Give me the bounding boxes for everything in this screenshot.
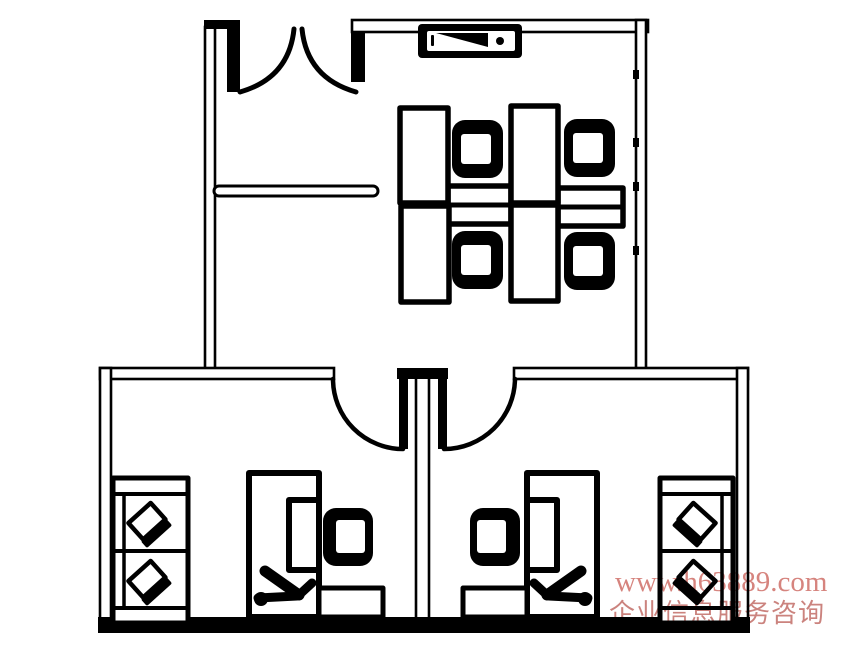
- door-leaf-left: [399, 374, 408, 449]
- cabinet-shelf-icon: [113, 478, 188, 623]
- door-swing-left: [333, 379, 403, 449]
- office-chair-icon: [564, 119, 615, 177]
- left-office: [113, 473, 383, 623]
- lower-section-walls: [98, 368, 750, 633]
- double-door-icon: [240, 29, 356, 92]
- office-chair-icon: [470, 508, 520, 566]
- upper-left-wall: [205, 27, 215, 375]
- bottom-wall: [98, 617, 750, 633]
- office-chair-icon: [564, 232, 615, 290]
- wall-nub: [633, 138, 639, 147]
- workstation-desk-icon: [400, 108, 448, 203]
- tv-screen-icon: [418, 24, 522, 58]
- lower-top-wall-right: [514, 368, 748, 379]
- drawer-pedestal-icon: [319, 588, 383, 617]
- monitor-icon: [289, 500, 319, 570]
- lower-right-wall: [737, 368, 748, 625]
- office-chair-icon: [452, 231, 503, 289]
- workstation-desk-icon: [401, 206, 449, 302]
- wall-nub: [633, 182, 639, 191]
- lower-left-wall: [100, 368, 111, 625]
- right-office: [463, 473, 733, 623]
- door-jamb-right: [351, 26, 365, 82]
- workstation-desk-icon: [511, 106, 558, 203]
- wall-nub: [633, 246, 639, 255]
- workstation-cluster: [400, 106, 623, 302]
- floor-plan-page: www.h63889.com 企业信息服务咨询: [0, 0, 846, 653]
- workstation-desk-icon: [511, 205, 558, 301]
- center-partition-wall: [416, 372, 429, 622]
- door-swing-right: [444, 379, 515, 449]
- cabinet-shelf-icon: [660, 478, 733, 623]
- office-chair-icon: [323, 508, 373, 566]
- lower-top-wall-left: [100, 368, 334, 379]
- monitor-icon: [527, 500, 557, 570]
- floor-plan-drawing: [0, 0, 846, 653]
- drawer-pedestal-icon: [463, 588, 527, 617]
- office-chair-icon: [452, 120, 503, 178]
- wall-nub: [633, 70, 639, 79]
- door-leaf-right: [438, 374, 447, 449]
- door-jamb-left: [227, 26, 240, 92]
- half-wall-divider-icon: [214, 186, 378, 196]
